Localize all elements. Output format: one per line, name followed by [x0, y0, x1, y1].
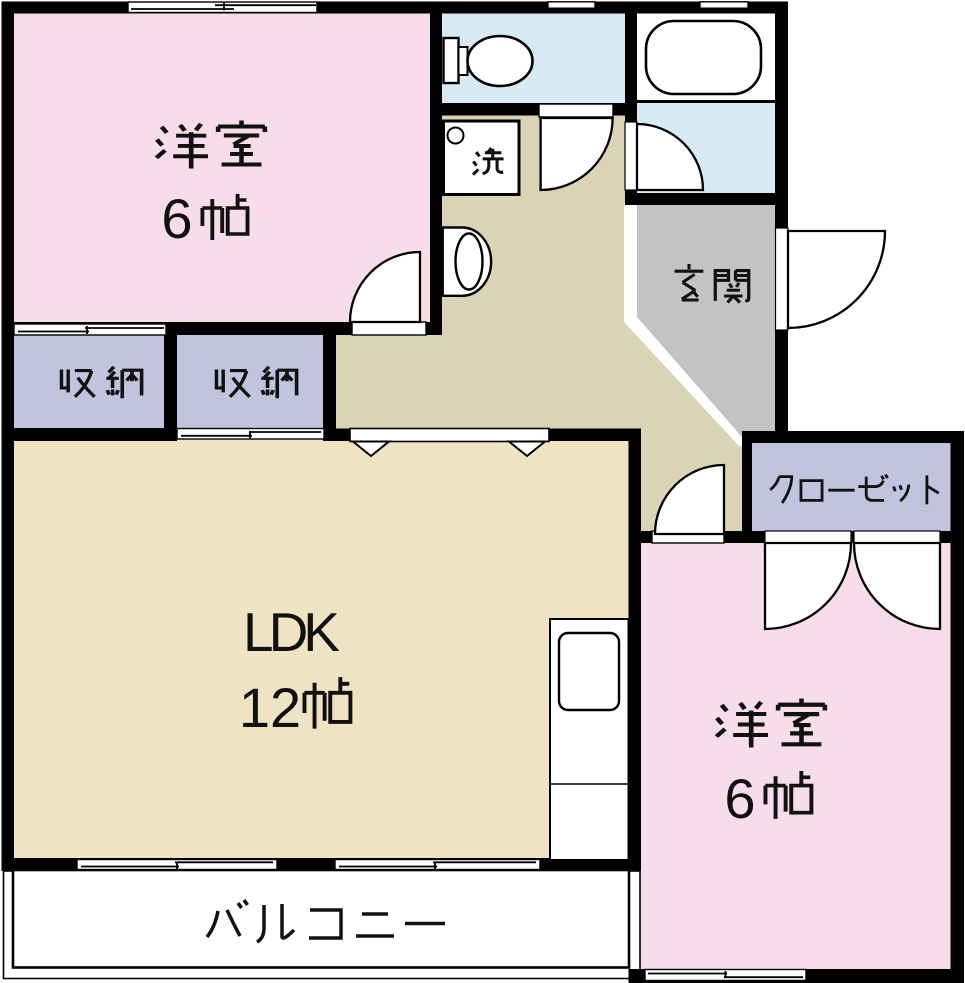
svg-text:6: 6: [724, 767, 755, 830]
svg-text:6: 6: [161, 187, 192, 250]
svg-text:LDK: LDK: [243, 601, 340, 663]
svg-text:12: 12: [239, 676, 301, 739]
